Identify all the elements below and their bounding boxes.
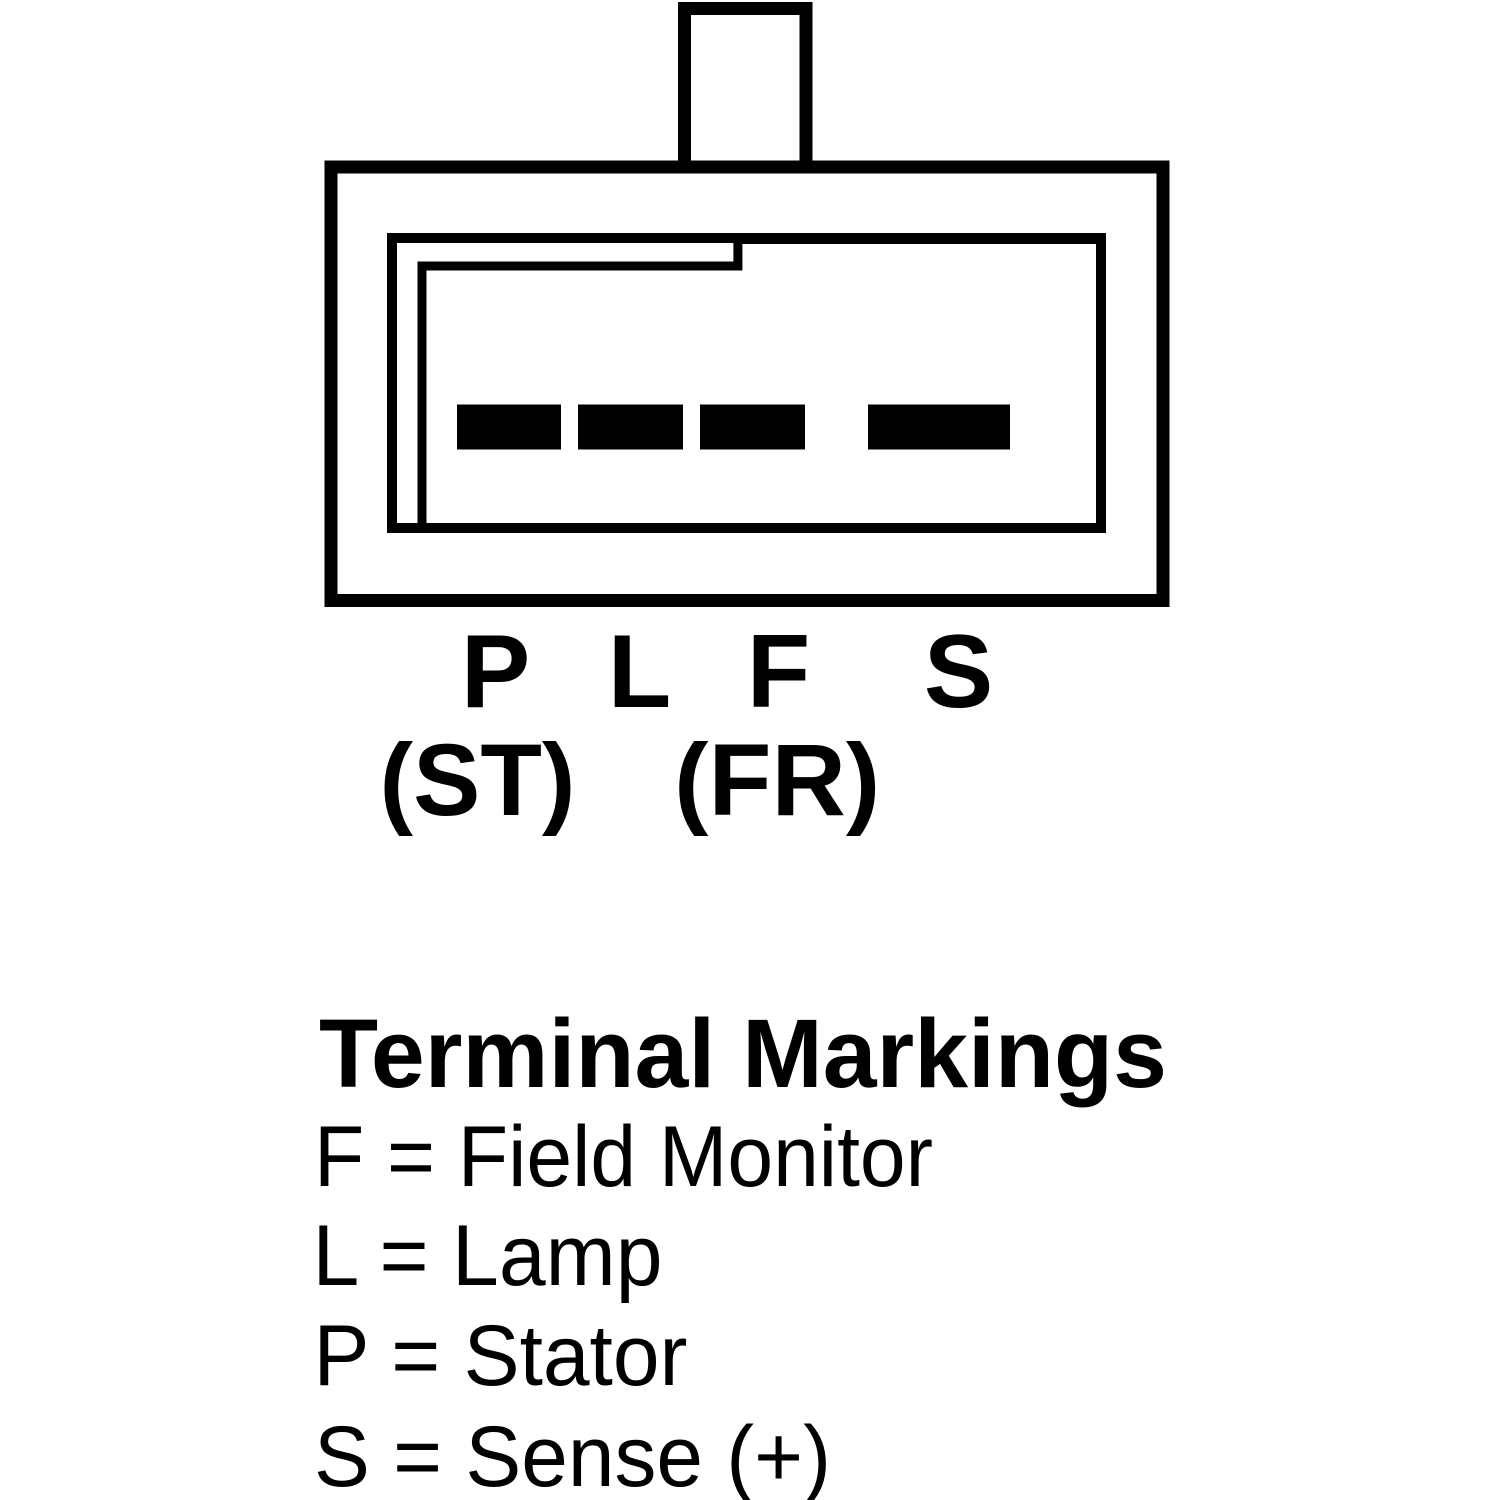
svg-text:L = Lamp: L = Lamp — [313, 1208, 663, 1304]
svg-text:F: F — [747, 614, 811, 730]
svg-text:(ST): (ST) — [380, 723, 576, 837]
svg-text:F = Field Monitor: F = Field Monitor — [314, 1109, 933, 1205]
svg-text:S = Sense (+): S = Sense (+) — [314, 1409, 831, 1500]
svg-text:L: L — [608, 614, 672, 730]
svg-text:S: S — [924, 614, 993, 730]
svg-text:P = Stator: P = Stator — [314, 1308, 688, 1404]
svg-text:Terminal Markings: Terminal Markings — [319, 999, 1167, 1108]
svg-text:P: P — [461, 614, 530, 730]
svg-text:(FR): (FR) — [674, 723, 880, 837]
